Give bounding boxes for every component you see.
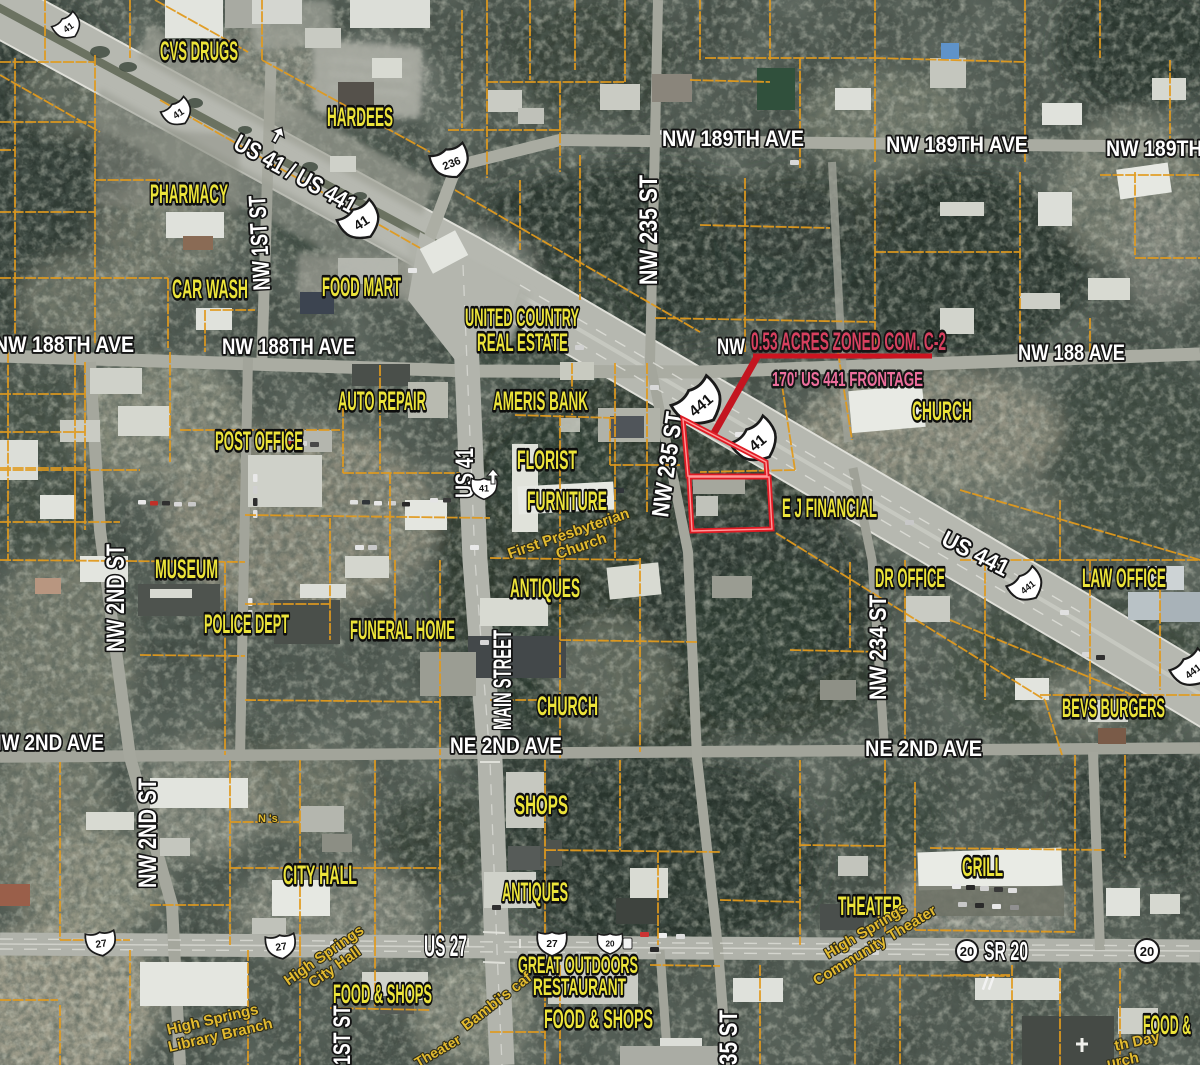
svg-text:NW 188TH AVE: NW 188TH AVE	[222, 334, 355, 359]
svg-text:FLORIST: FLORIST	[517, 445, 577, 475]
svg-text:PHARMACY: PHARMACY	[150, 179, 228, 209]
svg-text:FURNITURE: FURNITURE	[527, 486, 607, 516]
svg-text:ANTIQUES: ANTIQUES	[510, 573, 580, 603]
svg-text:RESTAURANT: RESTAURANT	[533, 974, 626, 1001]
svg-text:AUTO REPAIR: AUTO REPAIR	[338, 386, 426, 416]
svg-text:AMERIS BANK: AMERIS BANK	[493, 386, 588, 416]
svg-text:SR 20: SR 20	[984, 936, 1028, 966]
svg-text:41: 41	[479, 484, 489, 494]
svg-text:SHOPS: SHOPS	[515, 790, 568, 820]
svg-text:CVS DRUGS: CVS DRUGS	[160, 36, 238, 66]
svg-text:MAIN STREET: MAIN STREET	[489, 630, 517, 730]
svg-text:E J FINANCIAL: E J FINANCIAL	[782, 493, 877, 523]
svg-text:NW 234 ST: NW 234 ST	[865, 595, 892, 700]
svg-text:NW 189TH AVE: NW 189TH AVE	[886, 132, 1028, 157]
svg-text:27: 27	[95, 938, 108, 951]
svg-text:NW 2ND ST: NW 2ND ST	[102, 544, 130, 652]
svg-text:20: 20	[605, 939, 615, 948]
svg-text:0.53 ACRES ZONED COM. C-2: 0.53 ACRES ZONED COM. C-2	[751, 328, 946, 356]
svg-text:NW 2ND AVE: NW 2ND AVE	[0, 730, 104, 755]
svg-text:BEVS BURGERS: BEVS BURGERS	[1062, 693, 1165, 723]
svg-text:NW 189TH AVE: NW 189TH AVE	[662, 126, 804, 151]
svg-text:HARDEES: HARDEES	[327, 102, 393, 132]
svg-text:MUSEUM: MUSEUM	[155, 554, 218, 584]
svg-text:27: 27	[275, 941, 288, 954]
svg-text:FOOD & SHOPS: FOOD & SHOPS	[333, 979, 432, 1009]
svg-text:REAL ESTATE: REAL ESTATE	[477, 329, 568, 357]
svg-text:LAW OFFICE: LAW OFFICE	[1082, 563, 1166, 593]
svg-text:1ST ST: 1ST ST	[329, 1005, 356, 1065]
svg-text:FOOD MART: FOOD MART	[322, 272, 401, 302]
svg-text:GRILL: GRILL	[962, 852, 1003, 882]
svg-text:CAR WASH: CAR WASH	[172, 274, 248, 304]
svg-text:ANTIQUES: ANTIQUES	[502, 877, 568, 907]
svg-text:NE 2ND AVE: NE 2ND AVE	[865, 736, 982, 761]
svg-text:NW 188TH AVE: NW 188TH AVE	[0, 332, 134, 357]
svg-text:CHURCH: CHURCH	[537, 691, 598, 721]
svg-text:POST OFFICE: POST OFFICE	[215, 426, 303, 456]
svg-text:N 's: N 's	[258, 813, 278, 825]
svg-text:NW 1ST ST: NW 1ST ST	[244, 195, 276, 292]
svg-text:27: 27	[546, 939, 558, 950]
svg-text:FUNERAL HOME: FUNERAL HOME	[350, 615, 455, 645]
svg-text:NW: NW	[717, 334, 745, 359]
svg-text:20: 20	[1140, 944, 1154, 959]
svg-text:FOOD & SHOPS: FOOD & SHOPS	[544, 1004, 653, 1034]
svg-text:DR OFFICE: DR OFFICE	[875, 563, 945, 593]
svg-text:US 27: US 27	[424, 930, 467, 963]
svg-text:POLICE DEPT: POLICE DEPT	[204, 609, 289, 639]
svg-text:NE 2ND AVE: NE 2ND AVE	[450, 733, 562, 758]
svg-text:NW 2ND ST: NW 2ND ST	[134, 778, 162, 888]
svg-text:35 ST: 35 ST	[715, 1010, 743, 1065]
svg-text:170' US 441 FRONTAGE: 170' US 441 FRONTAGE	[772, 369, 923, 391]
svg-text:CITY HALL: CITY HALL	[283, 860, 357, 890]
svg-text:NW 188 AVE: NW 188 AVE	[1018, 340, 1125, 365]
svg-text:UNITED COUNTRY: UNITED COUNTRY	[465, 304, 579, 332]
svg-text:20: 20	[960, 944, 974, 959]
svg-text:NW 235 ST: NW 235 ST	[635, 175, 663, 285]
svg-text:CHURCH: CHURCH	[912, 396, 972, 426]
svg-text:NW 189TH AVE: NW 189TH AVE	[1106, 136, 1200, 161]
